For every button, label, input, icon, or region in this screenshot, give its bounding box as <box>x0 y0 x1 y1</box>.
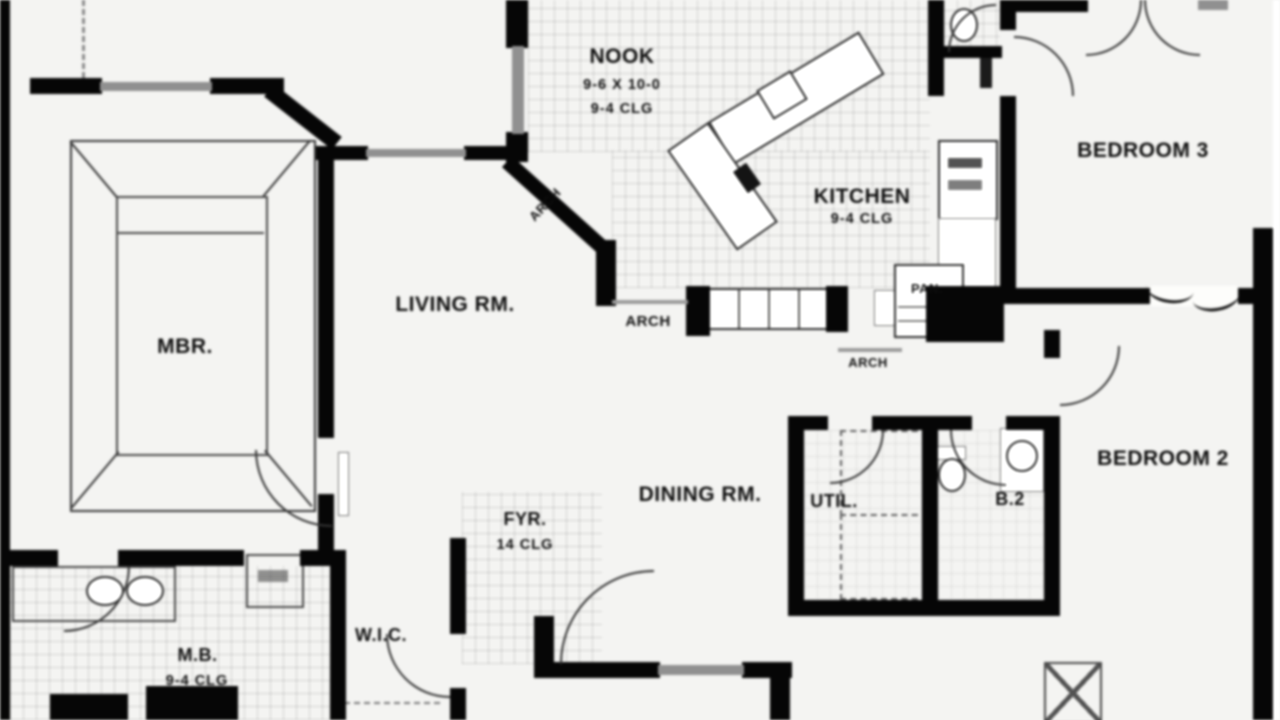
vanity-sink <box>126 576 164 606</box>
door-arc-bedroom3 <box>1014 36 1074 96</box>
door-arc-mbr <box>255 450 332 527</box>
room-label-util: UTIL. <box>794 492 874 510</box>
window-squiggle <box>1190 278 1242 315</box>
room-ceiling-mbath: 9-4 CLG <box>142 674 252 689</box>
wall-segment <box>450 538 466 634</box>
room-label-foyer: FYR. <box>480 510 570 528</box>
wall-segment <box>788 600 938 616</box>
room-label-dining: DINING RM. <box>610 484 790 505</box>
photo-edge-strip <box>1273 0 1280 720</box>
wall-segment <box>1236 288 1262 304</box>
wall-segment <box>788 416 804 616</box>
wall-segment <box>938 416 972 430</box>
room-label-pantry: PAN. <box>896 282 958 295</box>
window-segment <box>1198 0 1228 10</box>
wall-segment <box>922 600 1060 616</box>
wall-segment <box>928 0 944 96</box>
wall-segment <box>450 688 466 720</box>
window-segment <box>512 46 524 134</box>
wall-segment <box>10 550 58 566</box>
wall-segment <box>770 676 790 720</box>
wall-segment <box>318 146 334 438</box>
closet-door-leaf <box>980 58 992 88</box>
room-ceiling-kitchen: 9-4 CLG <box>782 212 942 227</box>
wall-segment <box>118 550 244 566</box>
arch-opening-line <box>838 348 902 352</box>
dryer-box <box>840 514 928 600</box>
wall-segment <box>0 0 10 720</box>
door-arc-double-left <box>1086 0 1142 56</box>
wall-segment <box>1044 330 1060 358</box>
window-segment <box>658 665 744 675</box>
closet-text-smudge <box>258 570 288 582</box>
wall-segment <box>506 0 528 48</box>
wall-segment <box>1000 0 1016 30</box>
door-leaf-mbr <box>338 452 349 516</box>
room-label-living: LIVING RM. <box>365 294 545 315</box>
tub-fixture-cutoff <box>50 694 128 720</box>
room-label-kitchen: KITCHEN <box>782 186 942 207</box>
porch-line-dashed <box>82 0 85 78</box>
bed-mattress <box>116 196 268 456</box>
shower-fixture-cutoff <box>146 686 238 720</box>
bed-pillow-line <box>116 232 264 234</box>
window-segment <box>366 149 466 157</box>
room-label-mbath: M.B. <box>160 646 235 664</box>
wall-segment <box>1000 96 1016 292</box>
wall-segment <box>596 240 616 306</box>
wall-segment <box>1016 0 1088 12</box>
mechanical-closet-x <box>1044 662 1102 720</box>
wall-segment <box>1004 288 1152 304</box>
room-label-mbr: MBR. <box>125 336 245 357</box>
bath2-sink <box>1006 440 1038 472</box>
window-segment <box>100 82 212 91</box>
wall-segment <box>922 416 938 616</box>
wall-segment <box>30 78 102 94</box>
door-arc-bedroom2 <box>1060 346 1120 406</box>
door-arc-double-right <box>1144 0 1200 56</box>
wall-segment <box>686 286 710 336</box>
room-label-bedroom2: BEDROOM 2 <box>1058 448 1268 469</box>
room-ceiling-foyer: 14 CLG <box>477 538 573 553</box>
wic-shelf-rod <box>344 702 440 704</box>
room-size-nook: 9-6 X 10-0 <box>552 78 692 93</box>
wall-segment <box>1044 416 1060 616</box>
arch-opening-line <box>612 300 688 304</box>
floor-plan-screenshot: NOOK 9-6 X 10-0 9-4 CLG KITCHEN 9-4 CLG … <box>0 0 1280 720</box>
kitchen-lower-counter <box>708 288 832 330</box>
appliance-text-smudge <box>948 158 982 168</box>
room-label-nook: NOOK <box>552 46 692 67</box>
wall-segment <box>788 416 828 430</box>
room-label-bath2: B.2 <box>975 490 1045 508</box>
appliance-text-smudge <box>948 180 982 190</box>
arch-annotation: ARCH <box>836 356 900 369</box>
wall-segment <box>826 286 848 332</box>
arch-annotation: ARCH <box>612 314 684 329</box>
floor-plan-drawing: NOOK 9-6 X 10-0 9-4 CLG KITCHEN 9-4 CLG … <box>0 0 1280 720</box>
room-label-wic: W.I.C. <box>336 626 426 644</box>
room-label-bedroom3: BEDROOM 3 <box>1033 140 1253 161</box>
room-ceiling-nook: 9-4 CLG <box>552 102 692 117</box>
wall-segment <box>300 550 334 566</box>
wall-segment <box>550 662 660 678</box>
